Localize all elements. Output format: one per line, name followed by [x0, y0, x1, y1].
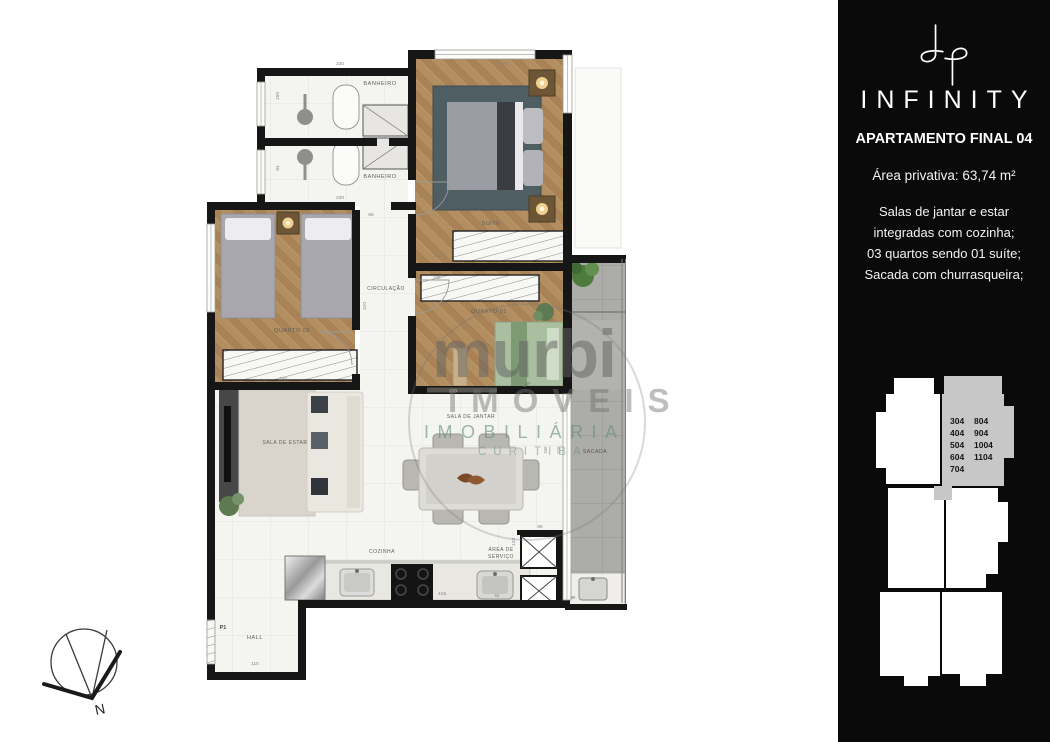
- room-label-quarto2: QUARTO 02: [274, 328, 310, 334]
- dim-label: 240: [501, 61, 509, 67]
- room-label-banheiro2: BANHEIRO: [363, 174, 396, 180]
- faucet-icon: [591, 577, 595, 581]
- description-line: 03 quartos sendo 01 suíte;: [838, 243, 1050, 264]
- unit-number: 304: [950, 416, 964, 426]
- unit-number: 1104: [974, 452, 993, 462]
- lamp-glow: [540, 81, 545, 86]
- dim-label: 84: [275, 165, 281, 171]
- bathtub: [333, 141, 359, 185]
- sofa-pillow: [311, 396, 328, 413]
- plant-icon: [585, 262, 599, 276]
- description-line: Salas de jantar e estar: [838, 201, 1050, 222]
- quarto1-bench: [453, 348, 467, 386]
- dim-label: 230: [336, 195, 344, 201]
- living-rug: [239, 388, 315, 516]
- suite-pillow: [523, 108, 543, 144]
- quarto1-pillow: [547, 328, 559, 380]
- plant-icon: [533, 311, 543, 321]
- living-furniture: [219, 388, 363, 516]
- north-compass: N: [28, 612, 143, 732]
- lamp-glow: [286, 221, 290, 225]
- unit-number: 804: [974, 416, 988, 426]
- dim-label: 150: [275, 92, 281, 100]
- compass-needle-icon: [66, 630, 107, 698]
- keyplan-highlight-unit: [934, 376, 1014, 500]
- compass-north-label: N: [93, 700, 106, 718]
- dim-label: 510: [556, 446, 561, 454]
- dim-label: 240: [434, 275, 442, 280]
- balcony-floor: [570, 258, 626, 604]
- dim-label: 84: [495, 593, 500, 598]
- room-label-quarto1: QUARTO 01: [471, 309, 507, 315]
- dim-label: 90: [571, 595, 576, 600]
- unit-number: 604: [950, 452, 964, 462]
- laundry-tank-bowl: [482, 576, 508, 594]
- dim-label: 245: [279, 376, 287, 382]
- exterior-ledge: [575, 68, 621, 248]
- description-line: Sacada com churrasqueira;: [838, 264, 1050, 285]
- private-area-text: Área privativa: 63,74 m²: [838, 168, 1050, 183]
- fridge: [285, 556, 325, 600]
- dim-label: 230: [336, 61, 344, 67]
- dp-logo-icon: [908, 24, 980, 86]
- apartment-description: Salas de jantar e estar integradas com c…: [838, 201, 1050, 285]
- quarto1-throw: [511, 322, 527, 386]
- suite-closet: [453, 231, 565, 261]
- room-label-suite: SUÍTE: [482, 220, 501, 227]
- description-line: integradas com cozinha;: [838, 222, 1050, 243]
- room-label-cozinha: COZINHA: [369, 549, 395, 555]
- kitchen-sink-bowl: [344, 573, 370, 592]
- floor-plan: BANHEIRO BANHEIRO SUÍTE QUARTO 02 QUARTO…: [195, 28, 635, 698]
- bathtub: [333, 85, 359, 129]
- dining-chair: [521, 460, 539, 490]
- faucet-icon: [493, 572, 497, 576]
- sofa-pillow: [311, 432, 328, 449]
- info-sidebar: INFINITY APARTAMENTO FINAL 04 Área priva…: [838, 0, 1050, 742]
- hallway-floor: [360, 205, 416, 390]
- sofa-pillow: [311, 478, 328, 495]
- twin-bed-pillow: [225, 218, 271, 240]
- lamp-glow: [540, 207, 545, 212]
- floorplan-page: BANHEIRO BANHEIRO SUÍTE QUARTO 02 QUARTO…: [0, 0, 1050, 742]
- dim-label: 85: [537, 524, 543, 530]
- dim-label: 240: [434, 253, 442, 258]
- room-label-sala-estar: SALA DE ESTAR: [262, 440, 307, 446]
- plant-icon: [232, 493, 244, 505]
- tv-icon: [224, 406, 231, 482]
- room-label-sala-jantar: SALA DE JANTAR: [447, 414, 495, 420]
- balcony-paver: [572, 320, 624, 390]
- room-label-circulacao: CIRCULAÇÃO: [367, 285, 405, 292]
- faucet-icon: [355, 569, 359, 573]
- entry-door: [207, 620, 215, 664]
- suite-bed-throw: [497, 102, 515, 190]
- dim-label: 310: [362, 302, 368, 310]
- room-label-area-servico: SERVIÇO: [488, 554, 514, 560]
- building-keyplan: 304 404 504 604 704 804 904 1004 1104: [864, 372, 1024, 702]
- unit-number: 704: [950, 464, 964, 474]
- suite-bed-duvet: [447, 102, 497, 190]
- unit-number: 504: [950, 440, 964, 450]
- dim-label: 90: [418, 193, 424, 199]
- cooktop: [391, 564, 433, 600]
- dining-furniture: [403, 434, 539, 524]
- room-label-banheiro1: BANHEIRO: [363, 81, 396, 87]
- room-label-area-servico: ÁREA DE: [488, 546, 513, 553]
- room-label-sacada: SACADA: [583, 449, 607, 455]
- dim-label: 65: [368, 212, 374, 218]
- apartment-title: APARTAMENTO FINAL 04: [838, 131, 1050, 147]
- bbq-sink: [579, 578, 607, 600]
- door-tag: P1: [220, 625, 227, 631]
- dim-label: 110: [251, 661, 259, 667]
- room-label-hall: HALL: [247, 635, 263, 641]
- dim-label: 270: [449, 389, 457, 395]
- toilet: [297, 109, 313, 125]
- unit-number: 1004: [974, 440, 993, 450]
- toilet: [297, 149, 313, 165]
- brand-wordmark: INFINITY: [838, 86, 1050, 115]
- unit-number: 904: [974, 428, 988, 438]
- dim-label: 120: [511, 538, 517, 546]
- dim-label: 240: [543, 446, 548, 454]
- sofa-back: [347, 396, 360, 508]
- unit-number: 404: [950, 428, 964, 438]
- suite-pillow: [523, 150, 543, 186]
- compass-circle: [51, 629, 117, 695]
- dining-chair: [403, 460, 421, 490]
- sliding-panel: [427, 388, 497, 393]
- quarto2-wardrobe: [223, 350, 357, 380]
- suite-bed-sheet: [515, 102, 523, 190]
- twin-bed-pillow: [305, 218, 351, 240]
- dim-label: 415: [438, 591, 446, 597]
